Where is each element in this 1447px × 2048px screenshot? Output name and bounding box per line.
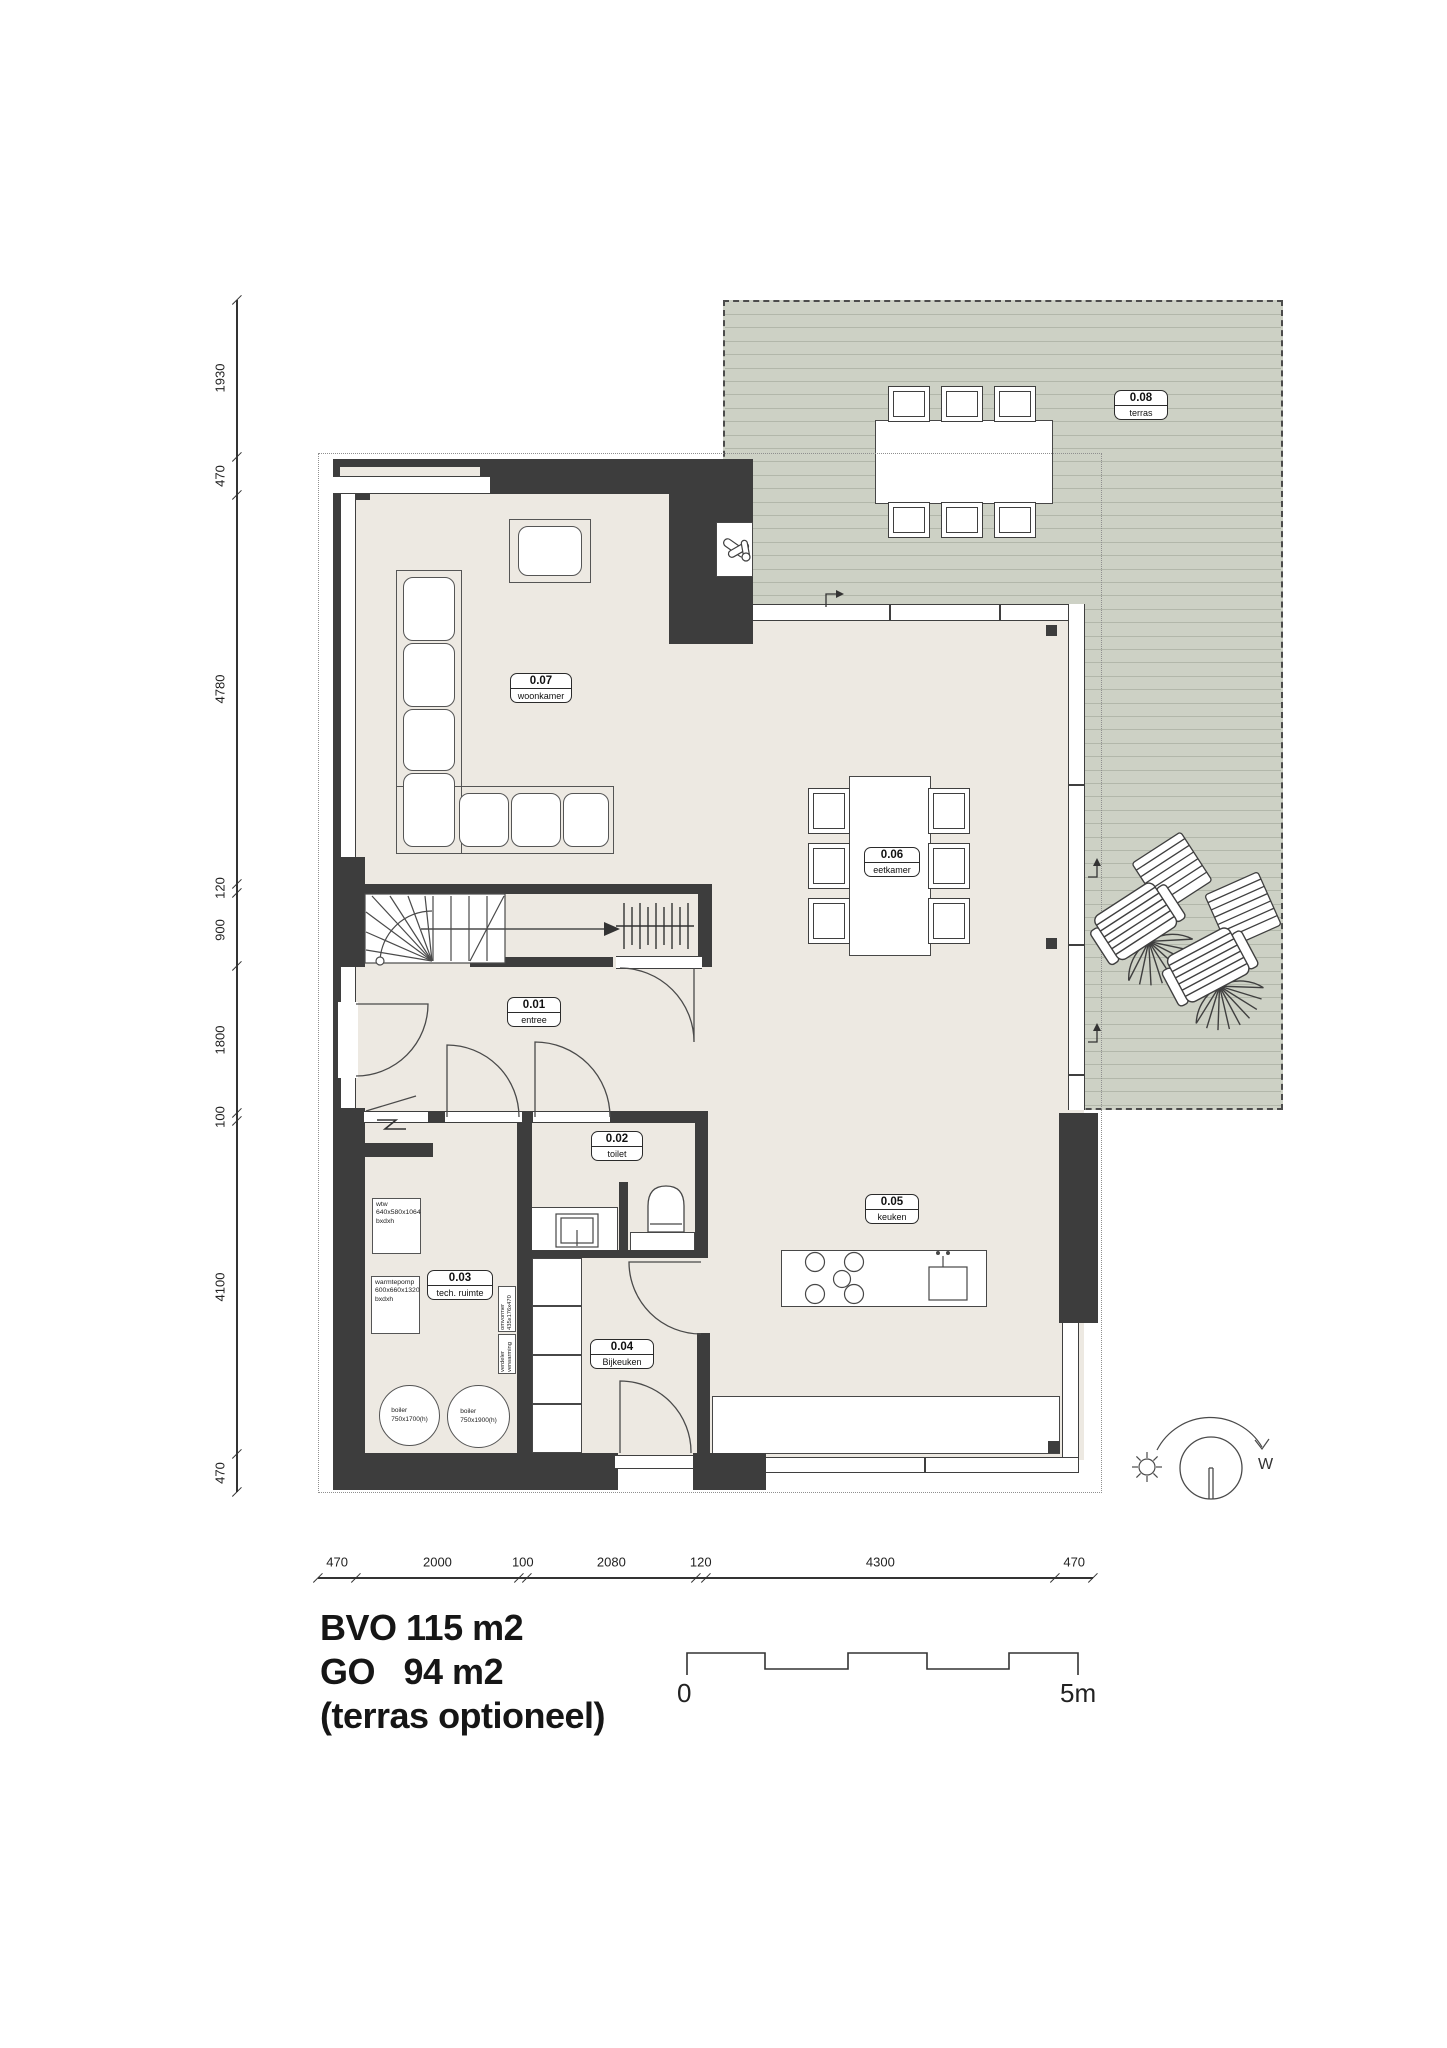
sofa-cushion [518,526,582,576]
sun-path-west-label: W [1258,1456,1273,1474]
room-name: toilet [592,1147,642,1160]
dimension-value: 1930 [213,364,228,393]
room-name: tech. ruimte [428,1286,492,1299]
window-eetkamer-north [753,604,1084,621]
room-name: Bijkeuken [591,1355,653,1368]
gap-tech-door [445,1112,522,1122]
sofa-cushion [563,793,609,847]
wall-toilet-stub [619,1182,628,1252]
chair-seat [994,386,1036,422]
window-north-west [333,476,490,494]
window-mullion [1069,944,1084,946]
window-west-3 [340,1077,356,1108]
chair-seat [928,843,970,889]
omvormer-unit: omvormer 435x176x470 [498,1286,516,1332]
room-label-terras: 0.08 terras [1114,390,1168,420]
boiler-left: boiler 750x1700(h) [379,1385,440,1446]
column-se [1048,1441,1060,1453]
window-mullion [1069,784,1084,786]
wall-west-stair [333,857,365,967]
room-name: keuken [866,1210,918,1223]
deck-board-line [725,327,1281,328]
bijkeuken-cabinet [532,1404,582,1453]
room-label-woonkamer: 0.07 woonkamer [510,673,572,703]
room-name: terras [1115,406,1167,419]
gap-front-door [338,1002,358,1078]
title-terras-note: (terras optioneel) [320,1695,605,1737]
chair-seat [808,843,850,889]
room-label-bijkeuken: 0.04 Bijkeuken [590,1339,654,1369]
dimension-value: 470 [326,1555,348,1570]
wall-toilet-east [695,1123,708,1256]
toilet-sink-counter [530,1207,618,1252]
scale-bar [687,1653,1078,1675]
north-indicator [1180,1437,1242,1499]
wall-tech-divider [517,1123,532,1453]
room-label-toilet: 0.02 toilet [591,1131,643,1161]
wall-bijkeuken-east [697,1333,710,1453]
wall-west-south [333,1108,365,1490]
window-keuken-south [766,1457,1078,1473]
room-number: 0.07 [511,674,571,689]
room-name: eetkamer [865,863,919,876]
dimension-value: 4100 [213,1273,228,1302]
window-eetkamer-east [1068,604,1085,1110]
dimension-value: 4300 [866,1555,895,1570]
chair-seat [888,502,930,538]
dimension-line-left [236,300,237,1492]
room-name: woonkamer [511,689,571,702]
wall-meterkast [333,1143,433,1157]
dimension-value: 100 [512,1555,534,1570]
deck-board-line [725,368,1281,369]
dimension-value: 470 [1063,1555,1085,1570]
deck-board-line [725,341,1281,342]
floor-east-wing [753,612,1084,1460]
lounge-chair-niche [716,522,753,577]
window-west-1 [340,494,356,857]
room-number: 0.06 [865,848,919,863]
chair-seat [941,386,983,422]
wall-stair-north [340,884,712,894]
window-keuken-east [1062,1323,1079,1473]
room-name: entree [508,1013,560,1026]
room-number: 0.01 [508,998,560,1013]
kitchen-counter [712,1396,1060,1454]
dimension-value: 2080 [597,1555,626,1570]
boiler-right: boiler 750x1900(h) [447,1385,510,1448]
deck-board-line [725,542,1281,543]
dimension-value: 120 [213,878,228,900]
window-mullion [924,1458,926,1472]
wtw-unit: wtw 640x580x1064 bxdxh [372,1198,421,1254]
window-west-2 [340,967,356,1003]
chair-seat [941,502,983,538]
wall-north [480,459,753,494]
deck-board-line [725,582,1281,583]
sofa-cushion [511,793,561,847]
verdeler-verwarming-unit: verdeler verwarming [498,1334,516,1374]
deck-board-line [725,314,1281,315]
wc-shelf [630,1232,695,1252]
dimension-value: 4780 [213,675,228,704]
room-label-keuken: 0.05 keuken [865,1194,919,1224]
window-mullion [1069,1074,1084,1076]
deck-board-line [725,595,1281,596]
room-label-tech-ruimte: 0.03 tech. ruimte [427,1270,493,1300]
sofa-cushion [403,709,455,771]
dimension-value: 2000 [423,1555,452,1570]
deck-board-line [725,381,1281,382]
deck-board-line [725,569,1281,570]
chair-seat [928,788,970,834]
floor-plan-canvas: 0.01 entree 0.02 toilet 0.03 tech. ruimt… [0,0,1447,2048]
bijkeuken-cabinet [532,1355,582,1404]
wall-south-west [333,1453,618,1490]
bijkeuken-cabinet [532,1306,582,1355]
room-label-entree: 0.01 entree [507,997,561,1027]
sun-icon [1132,1452,1162,1482]
warmtepomp-unit: warmtepomp 600x660x1320 bxdxh [371,1276,420,1334]
scale-bar-end-label: 5m [1060,1678,1096,1709]
room-number: 0.03 [428,1271,492,1286]
chair-seat [928,898,970,944]
chair-seat [808,898,850,944]
sofa-cushion [403,577,455,641]
dimension-value: 470 [213,465,228,487]
gap-meterkast-door [364,1112,428,1122]
bijkeuken-cabinet [532,1258,582,1306]
room-label-eetkamer: 0.06 eetkamer [864,847,920,877]
chair-seat [888,386,930,422]
sun-path-arc [1157,1417,1269,1450]
room-number: 0.02 [592,1132,642,1147]
sofa-cushion [403,773,455,847]
deck-board-line [725,555,1281,556]
column-e1 [1046,625,1057,636]
terrace-table [875,420,1053,504]
dimension-value: 120 [690,1555,712,1570]
wall-stair-bottom [470,957,613,967]
column-e2 [1046,938,1057,949]
title-go: GO 94 m2 [320,1651,503,1693]
wall-nw-edge [333,459,490,467]
deck-board-line [725,354,1281,355]
room-number: 0.05 [866,1195,918,1210]
threshold-backdoor [615,1455,693,1469]
window-mullion [889,605,891,620]
window-mullion [999,605,1001,620]
wall-keuken-east [1059,1113,1098,1323]
threshold-hall [616,956,702,969]
room-number: 0.04 [591,1340,653,1355]
gap-toilet-door [533,1112,610,1122]
dimension-value: 1800 [213,1025,228,1054]
wall-south-mid [693,1453,766,1490]
wall-toilet-south [528,1250,708,1258]
chair-seat [994,502,1036,538]
kitchen-island [781,1250,987,1307]
dimension-value: 100 [213,1106,228,1128]
chair-seat [808,788,850,834]
dimension-value: 470 [213,1462,228,1484]
dimension-value: 900 [213,919,228,941]
room-number: 0.08 [1115,391,1167,406]
scale-bar-zero-label: 0 [677,1678,691,1709]
sofa-cushion [403,643,455,707]
sofa-cushion [459,793,509,847]
title-bvo: BVO 115 m2 [320,1607,523,1649]
